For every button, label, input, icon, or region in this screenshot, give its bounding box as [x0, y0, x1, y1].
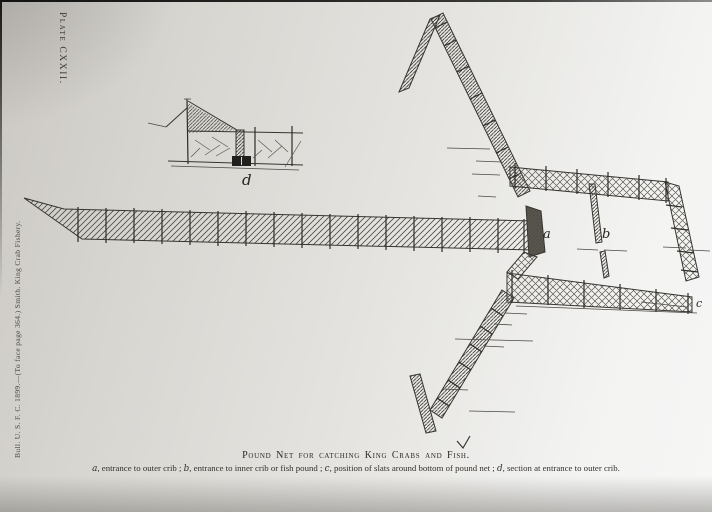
figure-legend: a, entrance to outer crib ; b, entrance …	[0, 463, 712, 474]
leader-fence	[24, 198, 533, 254]
pen-mark	[457, 436, 470, 448]
legend-desc-a: , entrance to outer crib ;	[97, 463, 183, 473]
legend-desc-c: , position of slats around bottom of pou…	[330, 463, 497, 473]
scanned-plate-page: Plate CXXII. Bull. U. S. F. C. 1899.—(To…	[0, 0, 712, 512]
label-c: c	[696, 297, 702, 310]
figure-caption: Pound Net for catching King Crabs and Fi…	[0, 450, 712, 461]
label-b: b	[602, 227, 610, 242]
legend-desc-b: , entrance to inner crib or fish pound ;	[189, 463, 324, 473]
label-a: a	[543, 227, 551, 242]
pound-net-figure: a b c d	[0, 0, 712, 512]
label-d: d	[242, 171, 252, 189]
section-inset	[148, 99, 303, 170]
legend-desc-d: , section at entrance to outer crib.	[503, 463, 620, 473]
